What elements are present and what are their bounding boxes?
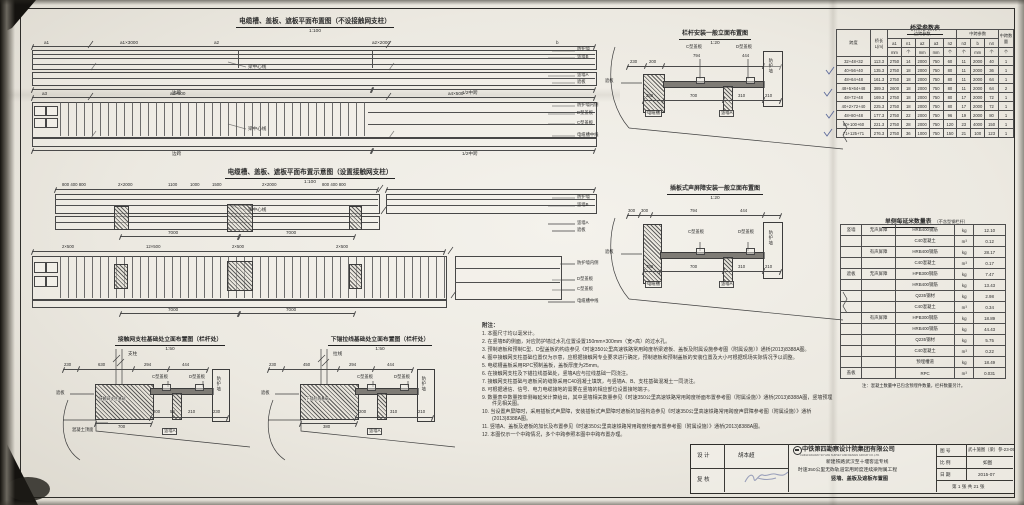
check-label: 复 核 bbox=[697, 477, 710, 483]
d​im-label: 794 bbox=[693, 54, 700, 59]
dim-label: 7000 bbox=[286, 307, 296, 312]
table-cell: 48+80+48 bbox=[837, 111, 871, 120]
cover-label: C型盖板 bbox=[688, 230, 704, 235]
pole-foundation-hatch bbox=[95, 384, 154, 420]
drain-box bbox=[195, 384, 204, 391]
project-line: 时速350公里无砟轨道常用跨度连续梁附属工程 bbox=[798, 468, 897, 473]
dim-label: b bbox=[556, 40, 559, 45]
table-cell: 2000 bbox=[915, 120, 929, 129]
note-item: 3. 预制遮板和预制C型、D型盖板的构造参见《时速350公里高速铁路常用跨度桥梁… bbox=[482, 347, 834, 354]
note-item: 4. 图中接触网支柱基础位置仅为示意，应根据接触网专业要求进行确定，预制遮板和预… bbox=[482, 355, 834, 362]
unit-cell: mm bbox=[888, 48, 902, 57]
table-cell: 19 bbox=[957, 111, 971, 120]
table-cell: Q235钢材 bbox=[895, 335, 954, 346]
dim-label: 444 bbox=[182, 363, 189, 368]
dim-label: 2×500 bbox=[232, 245, 244, 250]
table-cell: 2750 bbox=[888, 57, 902, 66]
cable-trough-box bbox=[34, 276, 46, 287]
side-label: 竖墙B bbox=[577, 203, 588, 208]
table-cell: 2000 bbox=[915, 102, 929, 111]
dim-label: 200 bbox=[359, 410, 366, 415]
dim-label: 800 400 800 bbox=[62, 183, 86, 188]
table-cell: kg bbox=[955, 324, 974, 335]
bridge-table-body: 32+48+32113.327501420007506011200040140+… bbox=[837, 57, 1014, 138]
col-header: b bbox=[971, 39, 985, 48]
table-cell: 113.3 bbox=[871, 57, 888, 66]
table-cell: kg bbox=[955, 247, 974, 258]
design-label: 设 计 bbox=[697, 453, 710, 459]
dimension-line bbox=[386, 189, 595, 190]
table-cell: 1 bbox=[999, 93, 1014, 102]
qty-table-body: 竖墙无声屏障HRB400钢筋kg12.10C40混凝土m³0.12有声屏障HRB… bbox=[841, 225, 1006, 379]
pole-foundation-hatch bbox=[227, 261, 253, 291]
drain-box bbox=[367, 384, 376, 391]
table-row: 40+2×72+40225.3275018200075080172000721 bbox=[837, 102, 1014, 111]
unit-cell: 个 bbox=[901, 48, 915, 57]
table-cell: 2750 bbox=[888, 75, 902, 84]
dim-label: a4×500 bbox=[448, 91, 463, 96]
table-cell: 120 bbox=[943, 120, 957, 129]
elev1-title: 栏杆安装一般立面布置图 bbox=[679, 28, 751, 40]
side-label: 电缆槽中线 bbox=[577, 133, 598, 138]
table-row: C40混凝土m³0.17 bbox=[841, 258, 1006, 269]
section-a-title: 接触网支柱基础处立面布置图（栏杆处） bbox=[115, 334, 225, 346]
cable-trough-box bbox=[34, 106, 46, 116]
side-label: D型盖板 bbox=[577, 111, 593, 116]
table-cell: 750 bbox=[929, 93, 943, 102]
table-cell: 无声屏障 bbox=[862, 269, 896, 280]
table-cell: kg bbox=[955, 291, 974, 302]
table-cell: 80 bbox=[943, 93, 957, 102]
company-name-en: CHINA RAILWAY SIYUAN SURVEY AND DESIGN G… bbox=[800, 455, 880, 458]
anchor-foundation-hatch bbox=[300, 384, 359, 420]
dim-label: 7000 bbox=[286, 230, 296, 235]
table-cell: 11 bbox=[957, 84, 971, 93]
strip-line bbox=[32, 54, 595, 55]
table-cell: 80 bbox=[943, 102, 957, 111]
table-cell: 0.22 bbox=[974, 346, 1006, 357]
table-cell: 2 bbox=[999, 84, 1014, 93]
note-item: 1. 本图尺寸均以毫米计。 bbox=[482, 331, 834, 338]
table-cell: HRB400钢筋 bbox=[895, 225, 954, 236]
table-row: 有声屏障HPB300钢筋kg18.89 bbox=[841, 313, 1006, 324]
table-cell: 1 bbox=[999, 120, 1014, 129]
sheet-number-info: 第 1 张 共 21 张 bbox=[952, 484, 984, 489]
wall-label: 防护墙 bbox=[768, 58, 773, 74]
title-block-divider bbox=[690, 468, 788, 469]
dimension-line bbox=[32, 150, 372, 151]
strip-line bbox=[386, 199, 595, 200]
wall-a-hatch bbox=[377, 393, 387, 420]
notes-heading: 附注： bbox=[482, 321, 834, 329]
deck-strip bbox=[32, 72, 597, 86]
dimension-line bbox=[120, 313, 239, 314]
dimension-line bbox=[32, 97, 595, 98]
dim-label: 7000 bbox=[168, 230, 178, 235]
dim-label: 700 bbox=[690, 94, 697, 99]
table-cell: 64 bbox=[985, 75, 999, 84]
unit-cell: mm bbox=[929, 48, 943, 57]
zheban-label: 遮板 bbox=[605, 250, 614, 255]
table-cell: 12.10 bbox=[974, 225, 1006, 236]
table-row: 48+5×64+48389.3260018200075080112000642 bbox=[837, 84, 1014, 93]
table-cell bbox=[862, 346, 896, 357]
table-row: C40混凝土m³0.22 bbox=[841, 346, 1006, 357]
table-cell: 750 bbox=[929, 66, 943, 75]
table-cell bbox=[841, 247, 862, 258]
cable-trough-label: 电缆槽 bbox=[645, 281, 662, 288]
deck-strip bbox=[32, 50, 597, 70]
scan-edge-shadow bbox=[0, 0, 1024, 5]
note-item: 10. 当设置声屏障时，采用插板式声屏障，安装插板式声屏障时遮板的加强构造参见《… bbox=[482, 409, 834, 423]
table-cell: 177.3 bbox=[871, 111, 888, 120]
dim-label: 310 bbox=[390, 410, 397, 415]
table-row: 有声屏障HRB400钢筋kg28.17 bbox=[841, 247, 1006, 258]
table-cell: 5.75 bbox=[974, 335, 1006, 346]
cover-label: D型盖板 bbox=[394, 375, 410, 380]
table-row: 预埋槽道kg18.49 bbox=[841, 357, 1006, 368]
dim-label: 310 bbox=[738, 265, 745, 270]
table-cell bbox=[862, 324, 896, 335]
dim-label: 294 bbox=[144, 363, 151, 368]
pole-foundation-hatch bbox=[349, 264, 362, 289]
table-cell: 有声屏障 bbox=[862, 247, 896, 258]
date-label: 日 期 bbox=[940, 472, 950, 477]
table-row: HRB400钢筋kg44.43 bbox=[841, 324, 1006, 335]
span-label: 1/2中跨 bbox=[462, 90, 478, 95]
table-cell: 135.3 bbox=[871, 66, 888, 75]
table-row: 竖墙无声屏障HRB400钢筋kg12.10 bbox=[841, 225, 1006, 236]
side-label: 竖墙A bbox=[577, 73, 588, 78]
dimension-line bbox=[63, 369, 208, 370]
col-header: 桥长L(m) bbox=[871, 30, 888, 57]
table-cell: HRB400钢筋 bbox=[895, 324, 954, 335]
table-cell: 40+2×72+40 bbox=[837, 102, 871, 111]
table-cell bbox=[841, 280, 862, 291]
note-item: 5. 电缆槽盖板采用RPC预制盖板，盖板厚度为25mm。 bbox=[482, 363, 834, 370]
table-cell: 44.43 bbox=[974, 324, 1006, 335]
unit-cell: 个 bbox=[943, 48, 957, 57]
section-b-title: 下锚拉线基础处立面布置图（栏杆处） bbox=[328, 334, 433, 346]
unit-cell: mm bbox=[971, 48, 985, 57]
table-cell bbox=[862, 302, 896, 313]
table-cell: 28.17 bbox=[974, 247, 1006, 258]
drain-box bbox=[696, 248, 705, 255]
drain-box bbox=[746, 248, 755, 255]
wall-a-label: 竖墙A bbox=[367, 428, 382, 435]
drain-box bbox=[400, 384, 409, 391]
table-cell: 2000 bbox=[915, 66, 929, 75]
deck-strip bbox=[32, 300, 447, 308]
table-cell: Q235钢材 bbox=[895, 291, 954, 302]
table-cell: 2000 bbox=[971, 57, 985, 66]
table-cell: 遮板 bbox=[841, 269, 862, 280]
table-cell: 有声屏障 bbox=[862, 313, 896, 324]
table-cell: 2000 bbox=[915, 84, 929, 93]
table-cell: kg bbox=[955, 313, 974, 324]
scan-edge-shadow bbox=[0, 500, 1024, 505]
table-cell: 161.3 bbox=[871, 75, 888, 84]
notes-block: 附注： 1. 本图尺寸均以毫米计。 2. 在竖墙B的侧面，对应防护墙过水孔位置设… bbox=[482, 321, 834, 440]
scale-value: 如图 bbox=[983, 460, 992, 465]
table-row: 盖板RPCm³0.031 bbox=[841, 368, 1006, 379]
cable-trough-box bbox=[46, 118, 58, 128]
table-cell: kg bbox=[955, 280, 974, 291]
dim-label: 700 bbox=[118, 425, 125, 430]
table-cell: 2750 bbox=[888, 120, 902, 129]
table-cell: 389.3 bbox=[871, 84, 888, 93]
surface-label: 混凝土顶面 bbox=[72, 428, 93, 433]
table-cell: 4000 bbox=[971, 120, 985, 129]
cable-trough-box bbox=[46, 276, 58, 287]
table-cell: 18 bbox=[901, 75, 915, 84]
elev2-title: 插板式声屏障安装一般立面布置图 bbox=[667, 183, 763, 195]
side-label: D型盖板 bbox=[577, 277, 593, 282]
cable-trough-box bbox=[34, 262, 46, 273]
table-row: 遮板无声屏障HPB300钢筋kg7.47 bbox=[841, 269, 1006, 280]
table-cell: 22 bbox=[901, 111, 915, 120]
dim-label: a1 bbox=[44, 40, 49, 45]
col-header: 跨度 bbox=[837, 30, 871, 57]
dim-label: a2×2000 bbox=[372, 40, 390, 45]
cover-plate-grid bbox=[60, 102, 368, 136]
zheban-label: 遮板 bbox=[56, 391, 65, 396]
table-cell: 盖板 bbox=[841, 368, 862, 379]
dimension-line bbox=[239, 313, 355, 314]
table-cell: 17 bbox=[957, 102, 971, 111]
table-cell: 0.12 bbox=[974, 236, 1006, 247]
dim-label: 200 bbox=[649, 60, 656, 65]
table-cell: 32+48+32 bbox=[837, 57, 871, 66]
dim-label: 444 bbox=[742, 54, 749, 59]
table-cell bbox=[862, 258, 896, 269]
zheban-label: 遮板 bbox=[261, 391, 270, 396]
table-cell: 1 bbox=[999, 75, 1014, 84]
centerline-label: 梁中心线 bbox=[248, 126, 266, 131]
strip-line bbox=[55, 199, 378, 200]
table-cell bbox=[841, 291, 862, 302]
table-cell: 7.47 bbox=[974, 269, 1006, 280]
side-label: 遮板 bbox=[577, 228, 586, 233]
table-cell: m³ bbox=[955, 302, 974, 313]
table-cell: 750 bbox=[929, 84, 943, 93]
wall-label: 防护墙 bbox=[216, 376, 221, 392]
table-row: 48+80+48177.3275022200075096192000801 bbox=[837, 111, 1014, 120]
figno-label: 图 号 bbox=[940, 448, 950, 453]
dim-label: 50 bbox=[170, 410, 175, 415]
table-cell: 36 bbox=[901, 129, 915, 138]
dim-label: 1000 bbox=[190, 183, 200, 188]
side-label: C型盖板 bbox=[577, 121, 593, 126]
dim-label: 2×500 bbox=[62, 245, 74, 250]
date-value: 2015-07 bbox=[978, 472, 995, 477]
drain-box bbox=[746, 77, 755, 84]
table-cell: 13.43 bbox=[974, 280, 1006, 291]
table-cell bbox=[841, 335, 862, 346]
strip-line bbox=[455, 268, 560, 269]
side-label: 防护墙内侧 bbox=[577, 261, 598, 266]
table-cell: 2750 bbox=[888, 93, 902, 102]
table-cell: 2750 bbox=[888, 66, 902, 75]
col-header: n2 bbox=[943, 39, 957, 48]
dim-label: 1100 bbox=[168, 183, 177, 188]
table-cell: 96 bbox=[943, 111, 957, 120]
table-row: Q235钢材kg2.98 bbox=[841, 291, 1006, 302]
dimension-line bbox=[32, 89, 372, 90]
dim-label: a2 bbox=[214, 40, 219, 45]
col-group-header: 中跨参数 bbox=[957, 30, 999, 39]
dimension-line bbox=[372, 150, 595, 151]
strip-line bbox=[455, 282, 560, 283]
table-cell: 60+100+60 bbox=[837, 120, 871, 129]
strip-line bbox=[386, 205, 595, 206]
table-cell: 60 bbox=[943, 57, 957, 66]
table-row: Q235钢材kg5.75 bbox=[841, 335, 1006, 346]
cable-trough-label: 电缆槽 bbox=[645, 110, 662, 117]
dim-label: 7000 bbox=[168, 307, 178, 312]
table-row: 48+64+48161.3275018200075080112000641 bbox=[837, 75, 1014, 84]
table-cell bbox=[862, 236, 896, 247]
side-label: 竖墙A bbox=[577, 221, 588, 226]
table-cell: 2000 bbox=[915, 93, 929, 102]
dim-label: 210 bbox=[765, 94, 772, 99]
table-header-row: 跨度 桥长L(m) 边跨参数 中跨参数 中跨数量 bbox=[837, 30, 1014, 39]
table-cell: 2000 bbox=[971, 66, 985, 75]
table-cell: kg bbox=[955, 335, 974, 346]
side-label: 防护墙 bbox=[577, 195, 590, 200]
table-cell: 21 bbox=[957, 129, 971, 138]
pole-foundation-hatch bbox=[349, 206, 362, 230]
wall-a-label: 竖墙A bbox=[719, 110, 734, 117]
table-row: C40混凝土m³0.34 bbox=[841, 302, 1006, 313]
project-line: 新建铁路武汉至十堰客运专线 bbox=[826, 460, 888, 465]
drawing-name: 竖墙、盖板及遮板布置图 bbox=[831, 477, 888, 483]
note-item: 11. 竖墙A、盖板及遮板的加长及布置参见《时速350公里高速铁路常用跨度桥面布… bbox=[482, 424, 834, 431]
dim-label: 210 bbox=[765, 265, 772, 270]
table-cell: 2000 bbox=[915, 57, 929, 66]
drawing-title-block: 下锚拉线基础处立面布置图（栏杆处） 1:50 bbox=[290, 328, 470, 352]
table-cell: 竖墙 bbox=[841, 225, 862, 236]
table-cell: 221.3 bbox=[871, 120, 888, 129]
table-cell: 750 bbox=[929, 111, 943, 120]
table-cell: 11 bbox=[957, 57, 971, 66]
table-cell: 40 bbox=[985, 57, 999, 66]
section-b-scale: 1:50 bbox=[290, 347, 470, 352]
dimension-line bbox=[239, 236, 355, 237]
dim-label: 630 bbox=[98, 363, 105, 368]
wall-label: 防护墙 bbox=[421, 376, 426, 392]
pole-label: 拉线 bbox=[333, 351, 342, 356]
table-cell: 48+72+48 bbox=[837, 93, 871, 102]
table-cell: 18 bbox=[901, 102, 915, 111]
plan1-scale: 1:100 bbox=[160, 29, 470, 34]
dim-label: 294 bbox=[349, 363, 356, 368]
table-cell bbox=[841, 324, 862, 335]
table-cell: 2750 bbox=[888, 129, 902, 138]
dim-label: 800 400 800 bbox=[322, 183, 346, 188]
table-cell bbox=[862, 291, 896, 302]
plan1-title: 电缆槽、盖板、遮板平面布置图（不设接触网支柱） bbox=[236, 15, 394, 28]
col-group-header: 边跨参数 bbox=[888, 30, 957, 39]
table-cell: 40+56+40 bbox=[837, 66, 871, 75]
dim-label: 230 bbox=[64, 363, 71, 368]
strip-line bbox=[32, 64, 595, 65]
title-block-divider bbox=[936, 456, 1013, 457]
table-cell: 80 bbox=[943, 75, 957, 84]
dimension-line bbox=[32, 46, 595, 47]
table-cell: 2000 bbox=[915, 111, 929, 120]
col-header: a2 bbox=[915, 39, 929, 48]
strip-joint bbox=[372, 50, 373, 68]
cable-trough-box bbox=[46, 262, 58, 273]
table-cell: 23 bbox=[957, 120, 971, 129]
scan-edge-shadow bbox=[1017, 0, 1024, 505]
table-cell: 2000 bbox=[971, 75, 985, 84]
note-item: 9. 数量表中数量按单侧每延米计算给出，其中竖墙相关数量参见《时速350公里高速… bbox=[482, 395, 834, 409]
table-cell bbox=[841, 313, 862, 324]
dim-label: 250 bbox=[646, 94, 653, 99]
table-cell: 80 bbox=[943, 84, 957, 93]
table-cell: kg bbox=[955, 225, 974, 236]
foundation-label: 下锚拉线基础 bbox=[306, 397, 329, 401]
table-cell bbox=[841, 258, 862, 269]
table-cell: m³ bbox=[955, 236, 974, 247]
dim-label: 450 bbox=[303, 363, 310, 368]
note-item: 12. 本图仅示一个中跨情况，多个中跨参照本图中中跨布置办理。 bbox=[482, 432, 834, 439]
strip-line bbox=[32, 78, 595, 79]
drain-box bbox=[696, 77, 705, 84]
wall-label: 防护墙 bbox=[768, 230, 773, 246]
table-cell: 14 bbox=[901, 57, 915, 66]
table-cell: m³ bbox=[955, 346, 974, 357]
table-cell: RPC bbox=[895, 368, 954, 379]
unit-cell: 个 bbox=[999, 48, 1014, 57]
drawing-title-block: 接触网支柱基础处立面布置图（栏杆处） 1:50 bbox=[80, 328, 260, 352]
table-row: 32+48+32113.3275014200075060112000401 bbox=[837, 57, 1014, 66]
dim-label: 300 bbox=[641, 209, 648, 214]
table-cell bbox=[862, 280, 896, 291]
dimension-line bbox=[355, 417, 433, 418]
table-cell: HPB300钢筋 bbox=[895, 313, 954, 324]
table-cell: 18.49 bbox=[974, 357, 1006, 368]
table-cell bbox=[841, 357, 862, 368]
table-cell: 276.3 bbox=[871, 129, 888, 138]
dim-label: 310 bbox=[738, 94, 745, 99]
table-cell: 18.89 bbox=[974, 313, 1006, 324]
table-cell: 1 bbox=[999, 57, 1014, 66]
table-cell: 1 bbox=[999, 129, 1014, 138]
table-cell: 169.3 bbox=[871, 93, 888, 102]
note-item: 7. 接触网支柱基础与遮板间的缝隙采用C40混凝土填筑，与竖墙A、B、支柱基础混… bbox=[482, 379, 834, 386]
foundation-label: 接触网支柱基础 bbox=[99, 397, 126, 401]
table-row: C40混凝土m³0.12 bbox=[841, 236, 1006, 247]
dim-label: 2×2000 bbox=[118, 183, 132, 188]
table-cell: 750 bbox=[929, 120, 943, 129]
table-cell: 72 bbox=[985, 93, 999, 102]
table-cell: 750 bbox=[929, 129, 943, 138]
table-row: HRB400钢筋kg13.43 bbox=[841, 280, 1006, 291]
drain-box bbox=[162, 384, 171, 391]
table-cell: 0.031 bbox=[974, 368, 1006, 379]
dim-label: a3×500 bbox=[170, 91, 185, 96]
dim-label: 230 bbox=[269, 363, 276, 368]
title-block-divider bbox=[966, 444, 967, 480]
deck-strip bbox=[55, 194, 380, 214]
side-label: 电缆槽中线 bbox=[577, 299, 598, 304]
span-label: 1/2中跨 bbox=[462, 151, 478, 156]
wall-a-label: 竖墙A bbox=[162, 428, 177, 435]
table-cell: HRB400钢筋 bbox=[895, 280, 954, 291]
